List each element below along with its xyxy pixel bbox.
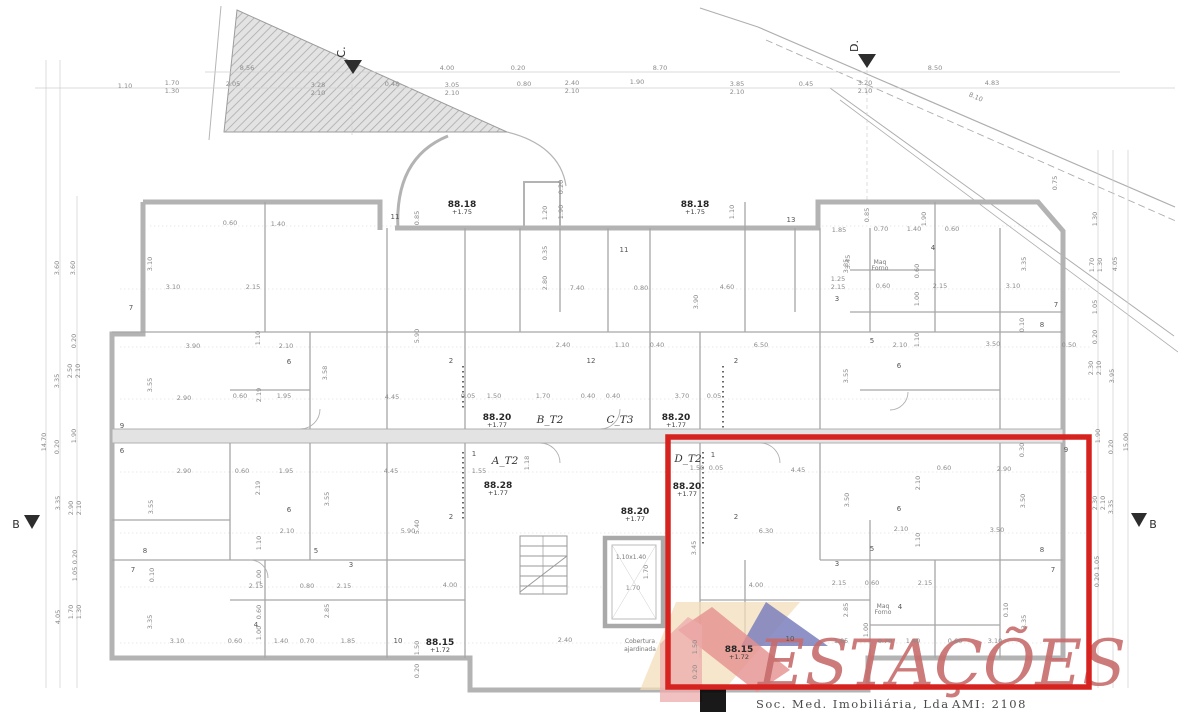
floor-plan-document: ESTAÇÕES Soc. Med. Imobiliária, Lda AMI:… — [0, 0, 1178, 720]
dimension-label: 8.10 — [968, 91, 984, 104]
room-number: 11 — [391, 213, 400, 221]
dimension-label: 2.15 — [831, 283, 845, 291]
elevation-sub-label: +1.77 — [625, 515, 645, 523]
dimension-label: 6.50 — [754, 341, 768, 349]
dimension-label: 3.10 — [146, 257, 154, 271]
section-marker-b-left-icon — [24, 515, 40, 529]
dimension-label: 3.50 — [986, 340, 1000, 348]
dimension-label: 3.95 — [1108, 369, 1116, 383]
dimension-label: 3.60 — [69, 261, 77, 275]
dimension-label: 1.18 — [523, 456, 531, 470]
dimension-label: 0.20 — [413, 664, 421, 678]
elevation-sub-label: +1.75 — [452, 208, 472, 216]
dimension-label: 0.75 — [1051, 176, 1059, 190]
room-number: 11 — [620, 246, 629, 254]
dimension-label: 1.10 — [914, 533, 922, 547]
dimension-label: 1.90 — [557, 205, 565, 219]
dimension-label: 2.10 — [445, 89, 459, 97]
dimension-label: 2.10 — [74, 364, 82, 378]
dimension-label: 4.00 — [440, 64, 454, 72]
dimension-label: 2.80 — [541, 276, 549, 290]
dimension-label: 1.95 — [279, 467, 293, 475]
dimension-label: 2.10 — [75, 501, 83, 515]
logo-chimney — [700, 686, 726, 712]
dimension-label: 1.90 — [70, 429, 78, 443]
dimension-label: 5.40 — [413, 520, 421, 534]
dimension-label: 8.50 — [928, 64, 942, 72]
dimension-label: 1.55 — [472, 467, 486, 475]
dimension-label: 2.50 — [66, 364, 74, 378]
dimension-label: 2.15 — [246, 283, 260, 291]
dimension-label: 3.10 — [1006, 282, 1020, 290]
room-number: 4 — [254, 621, 259, 629]
dimension-label: 2.10 — [914, 476, 922, 490]
dimension-label: 1.00 — [862, 623, 870, 637]
dimension-label: 0.70 — [878, 637, 892, 645]
section-marker-b-left-label: B — [12, 518, 20, 531]
dimension-label: 1.00 — [913, 292, 921, 306]
dimension-label: 2.10 — [858, 87, 872, 95]
dimension-label: 3.10 — [988, 637, 1002, 645]
dimension-label: 0.10 — [148, 568, 156, 582]
dimension-label: 2.40 — [556, 341, 570, 349]
dimension-label: 2.10 — [730, 88, 744, 96]
annotation-label: Cobertura — [625, 638, 655, 645]
room-number: 10 — [394, 637, 403, 645]
dimension-label: 3.55 — [842, 369, 850, 383]
room-number: 2 — [449, 357, 453, 365]
dimension-label: 1.10 — [118, 82, 132, 90]
dimension-label: 2.15 — [337, 582, 351, 590]
room-number: 13 — [787, 216, 796, 224]
room-number: 1 — [711, 451, 715, 459]
dimension-label: 4.00 — [443, 581, 457, 589]
elevation-sub-label: +1.77 — [487, 421, 507, 429]
dimension-label: 1.85 — [832, 226, 846, 234]
dimension-label: 2.90 — [67, 501, 75, 515]
dimension-label: 2.10 — [280, 527, 294, 535]
dimension-label: 1.70 — [67, 605, 75, 619]
dimension-label: 1.30 — [165, 87, 179, 95]
dimension-label: 1.25 — [831, 275, 845, 283]
dimension-label: 3.45 — [690, 541, 698, 555]
dimension-label: 1.10 — [254, 331, 262, 345]
dimension-label: 0.20 — [557, 180, 565, 194]
dimension-label: 0.20 — [1091, 330, 1099, 344]
dimension-label: 1.50 — [413, 641, 421, 655]
dimension-label: 1.05 — [1093, 556, 1101, 570]
dimension-label: 1.85 — [834, 637, 848, 645]
annotation-label: Forno — [875, 609, 892, 616]
dimension-label: 0.30 — [1018, 443, 1026, 457]
dimension-label: 0.80 — [634, 284, 648, 292]
section-markers: C. D. B B — [12, 40, 1157, 531]
dimension-label: 15.00 — [1122, 433, 1130, 452]
dimension-label: 3.50 — [990, 526, 1004, 534]
dimension-label: 1.70 — [165, 79, 179, 87]
apartment-label: A_T2 — [491, 455, 519, 467]
dimension-label: 3.20 — [858, 79, 872, 87]
dimension-label: 0.05 — [707, 392, 721, 400]
room-number: 2 — [449, 513, 453, 521]
dimension-label: 1.70 — [536, 392, 550, 400]
dimension-label: 3.10 — [166, 283, 180, 291]
annotation-label: ajardinada — [624, 646, 656, 653]
room-number: 2 — [734, 357, 738, 365]
elevation-sub-label: +1.77 — [488, 489, 508, 497]
dimension-label: 0.60 — [948, 637, 962, 645]
dimension-label: 1.10 — [913, 333, 921, 347]
room-number: 5 — [870, 545, 874, 553]
apartment-label: C_T3 — [607, 414, 634, 426]
dimension-label: 2.40 — [558, 636, 572, 644]
dimension-label: 3.55 — [323, 492, 331, 506]
section-marker-d-icon — [858, 54, 876, 68]
dimension-label: 1.40 — [271, 220, 285, 228]
dimension-label: 0.20 — [53, 440, 61, 454]
apartment-label: D_T2 — [673, 453, 702, 465]
room-number: 7 — [1051, 566, 1055, 574]
dimension-label: 0.70 — [300, 637, 314, 645]
dimension-label: 2.15 — [933, 282, 947, 290]
dimension-label: 1.70 — [626, 584, 640, 592]
dimension-label: 0.05 — [709, 464, 723, 472]
elevator-shaft — [605, 538, 663, 626]
elevation-sub-label: +1.75 — [685, 208, 705, 216]
room-number: 12 — [587, 357, 596, 365]
dimension-label: 1.05 — [1091, 300, 1099, 314]
dimension-label: 4.83 — [985, 79, 999, 87]
dimension-label: 4.45 — [791, 466, 805, 474]
dimension-label: 14.70 — [40, 433, 48, 452]
dimension-label: 0.80 — [300, 582, 314, 590]
dimension-label: 2.15 — [918, 579, 932, 587]
dimension-label: 0.80 — [517, 80, 531, 88]
dimension-label: 1.95 — [277, 392, 291, 400]
dimension-label: 0.60 — [865, 579, 879, 587]
room-number: 8 — [143, 547, 147, 555]
dimension-label: 1.90 — [1094, 429, 1102, 443]
dimension-label: 1.10 — [615, 341, 629, 349]
dimension-label: 0.10 — [1002, 603, 1010, 617]
dimension-label: 3.35 — [53, 374, 61, 388]
dimension-label: 0.50 — [1062, 341, 1076, 349]
dimension-label: 3.35 — [1020, 615, 1028, 629]
dimension-label: 1.50 — [487, 392, 501, 400]
site-boundary-lines — [700, 8, 1178, 352]
room-number: 7 — [129, 304, 133, 312]
dimension-label: 1.30 — [1096, 258, 1104, 272]
dimension-label: 3.90 — [186, 342, 200, 350]
annotation-label: Forno — [872, 265, 889, 272]
dimension-label: 4.00 — [749, 581, 763, 589]
dimension-label: 2.10 — [1095, 361, 1103, 375]
dimension-label: 0.48 — [385, 80, 399, 88]
room-number: 8 — [1040, 321, 1044, 329]
dimension-label: 3.35 — [1020, 257, 1028, 271]
dimension-label: 6.30 — [759, 527, 773, 535]
room-number: 6 — [897, 362, 902, 370]
dimension-label: 2.85 — [842, 603, 850, 617]
room-number: 1 — [472, 450, 476, 458]
dimension-label: 1.10 — [255, 536, 263, 550]
room-number: 6 — [120, 447, 125, 455]
dimension-label: 0.85 — [413, 211, 421, 225]
dimension-label: 3.28 — [311, 81, 325, 89]
room-number: 3 — [349, 561, 353, 569]
elevation-sub-label: +1.77 — [677, 490, 697, 498]
dimension-label: 1.85 — [341, 637, 355, 645]
room-number: 6 — [897, 505, 902, 513]
dimension-label: 0.40 — [650, 341, 664, 349]
dimension-label: 0.05 — [461, 392, 475, 400]
room-number: 5 — [314, 547, 318, 555]
dimension-label: 0.60 — [235, 467, 249, 475]
room-number: 3 — [835, 295, 839, 303]
dimension-label: 0.60 — [228, 637, 242, 645]
elevation-sub-label: +1.72 — [729, 653, 749, 661]
room-number: 5 — [870, 337, 874, 345]
dimension-label: 0.20 — [1107, 440, 1115, 454]
dimension-label: 2.19 — [255, 388, 263, 402]
dimension-label: 4.45 — [384, 467, 398, 475]
dimension-label: 2.30 — [1087, 361, 1095, 375]
dimension-label: 5.90 — [413, 329, 421, 343]
dimension-label: 0.10 — [1018, 318, 1026, 332]
room-number: 6 — [287, 358, 292, 366]
dimension-label: 1.70 — [1088, 258, 1096, 272]
logo-company-line: Soc. Med. Imobiliária, Lda — [756, 697, 950, 711]
dimension-label: 1.70 — [642, 565, 650, 579]
dimension-label: 4.05 — [54, 610, 62, 624]
elevation-sub-label: +1.77 — [666, 421, 686, 429]
dimension-label: 3.50 — [843, 493, 851, 507]
dimension-label: 3.85 — [730, 80, 744, 88]
dimension-label: 3.55 — [146, 378, 154, 392]
dimension-label: 3.50 — [1019, 494, 1027, 508]
room-number: 4 — [898, 603, 903, 611]
room-number: 3 — [835, 560, 839, 568]
dimension-label: 3.35 — [54, 496, 62, 510]
dimension-label: 0.45 — [799, 80, 813, 88]
dimension-label: 0.60 — [913, 264, 921, 278]
dimension-label: 3.60 — [53, 261, 61, 275]
dimension-label: 0.20 — [71, 550, 79, 564]
section-marker-b-right-icon — [1131, 513, 1147, 527]
dimension-label: 3.90 — [692, 295, 700, 309]
dimension-label: 0.20 — [1093, 573, 1101, 587]
dimension-label: 2.85 — [323, 604, 331, 618]
dimension-label: 2.90 — [997, 465, 1011, 473]
section-marker-b-right-label: B — [1149, 518, 1157, 531]
dimension-label: 0.40 — [606, 392, 620, 400]
dimension-label: 0.60 — [876, 282, 890, 290]
dimension-label: 2.30 — [1091, 496, 1099, 510]
dimension-label: 3.55 — [147, 500, 155, 514]
dimension-label: 0.20 — [70, 334, 78, 348]
dimension-label: 0.40 — [581, 392, 595, 400]
dimension-label: 3.58 — [321, 366, 329, 380]
dimension-label: 1.90 — [920, 212, 928, 226]
dimension-label: 3.45 — [844, 255, 852, 269]
dimension-label: 0.60 — [255, 605, 263, 619]
dimension-label: 0.85 — [863, 208, 871, 222]
dimension-label: 0.20 — [511, 64, 525, 72]
dimension-label: 4.45 — [385, 393, 399, 401]
dimension-label: 8.70 — [653, 64, 667, 72]
dimension-label: 1.05 — [71, 567, 79, 581]
dimension-label: 7.40 — [570, 284, 584, 292]
elevation-sub-label: +1.72 — [430, 646, 450, 654]
dimension-label: 1.20 — [541, 206, 549, 220]
dimension-label: 3.70 — [675, 392, 689, 400]
dimension-label: 4.60 — [720, 283, 734, 291]
dimension-label: 4.05 — [1111, 257, 1119, 271]
staircase — [520, 536, 567, 594]
room-number: 7 — [1054, 301, 1058, 309]
section-marker-d-label: D. — [848, 40, 861, 52]
floor-plan-drawing: ESTAÇÕES Soc. Med. Imobiliária, Lda AMI:… — [0, 0, 1178, 720]
dimension-label: 3.35 — [1107, 500, 1115, 514]
dimension-label: 2.10 — [279, 342, 293, 350]
dimension-label: 1.40 — [274, 637, 288, 645]
dimension-label: 8.56 — [240, 64, 254, 72]
dimension-label: 2.19 — [254, 481, 262, 495]
dimension-label: 1.30 — [1091, 212, 1099, 226]
dimension-label: 2.90 — [177, 394, 191, 402]
room-number: 9 — [1064, 446, 1068, 454]
hatched-terrace-area — [209, 6, 566, 186]
dimension-label: 2.15 — [832, 579, 846, 587]
room-number: 2 — [734, 513, 738, 521]
apartment-label: B_T2 — [536, 414, 564, 426]
dimension-label: 1.40 — [906, 637, 920, 645]
room-number: 4 — [931, 244, 936, 252]
room-number: 8 — [1040, 546, 1044, 554]
annotation-label: 1.10x1.40 — [616, 554, 646, 561]
dimension-label: 0.35 — [541, 246, 549, 260]
dimension-label: 2.40 — [565, 79, 579, 87]
dimension-label: 2.10 — [565, 87, 579, 95]
room-number: 6 — [287, 506, 292, 514]
dimension-label: 1.50 — [691, 640, 699, 654]
dimension-label: 3.35 — [146, 615, 154, 629]
dimension-label: 3.05 — [445, 81, 459, 89]
dimension-label: 2.05 — [226, 80, 240, 88]
dimension-label: 0.60 — [223, 219, 237, 227]
dimension-label: 0.60 — [937, 464, 951, 472]
dimension-label: 1.00 — [255, 570, 263, 584]
dimension-label: 2.90 — [177, 467, 191, 475]
dimension-label: 3.10 — [170, 637, 184, 645]
dimension-label: 2.10 — [893, 341, 907, 349]
room-number: 10 — [786, 635, 795, 643]
dimension-label: 1.90 — [630, 78, 644, 86]
dimension-label: 0.20 — [691, 665, 699, 679]
dimension-label: 0.70 — [874, 225, 888, 233]
door-arcs — [250, 392, 908, 578]
logo-ami-number: AMI: 2108 — [951, 697, 1027, 711]
room-number: 9 — [120, 422, 124, 430]
curved-wall — [398, 136, 448, 230]
dimension-label: 2.10 — [311, 89, 325, 97]
dimension-label: 0.60 — [233, 392, 247, 400]
dimension-label: 0.60 — [945, 225, 959, 233]
dimension-label: 1.50 — [690, 464, 704, 472]
room-number: 7 — [131, 566, 135, 574]
dimension-label: 2.10 — [1099, 496, 1107, 510]
dimension-label: 1.30 — [75, 605, 83, 619]
dimension-label: 2.10 — [894, 525, 908, 533]
section-marker-c-label: C. — [335, 46, 348, 57]
dimension-label: 1.10 — [728, 205, 736, 219]
